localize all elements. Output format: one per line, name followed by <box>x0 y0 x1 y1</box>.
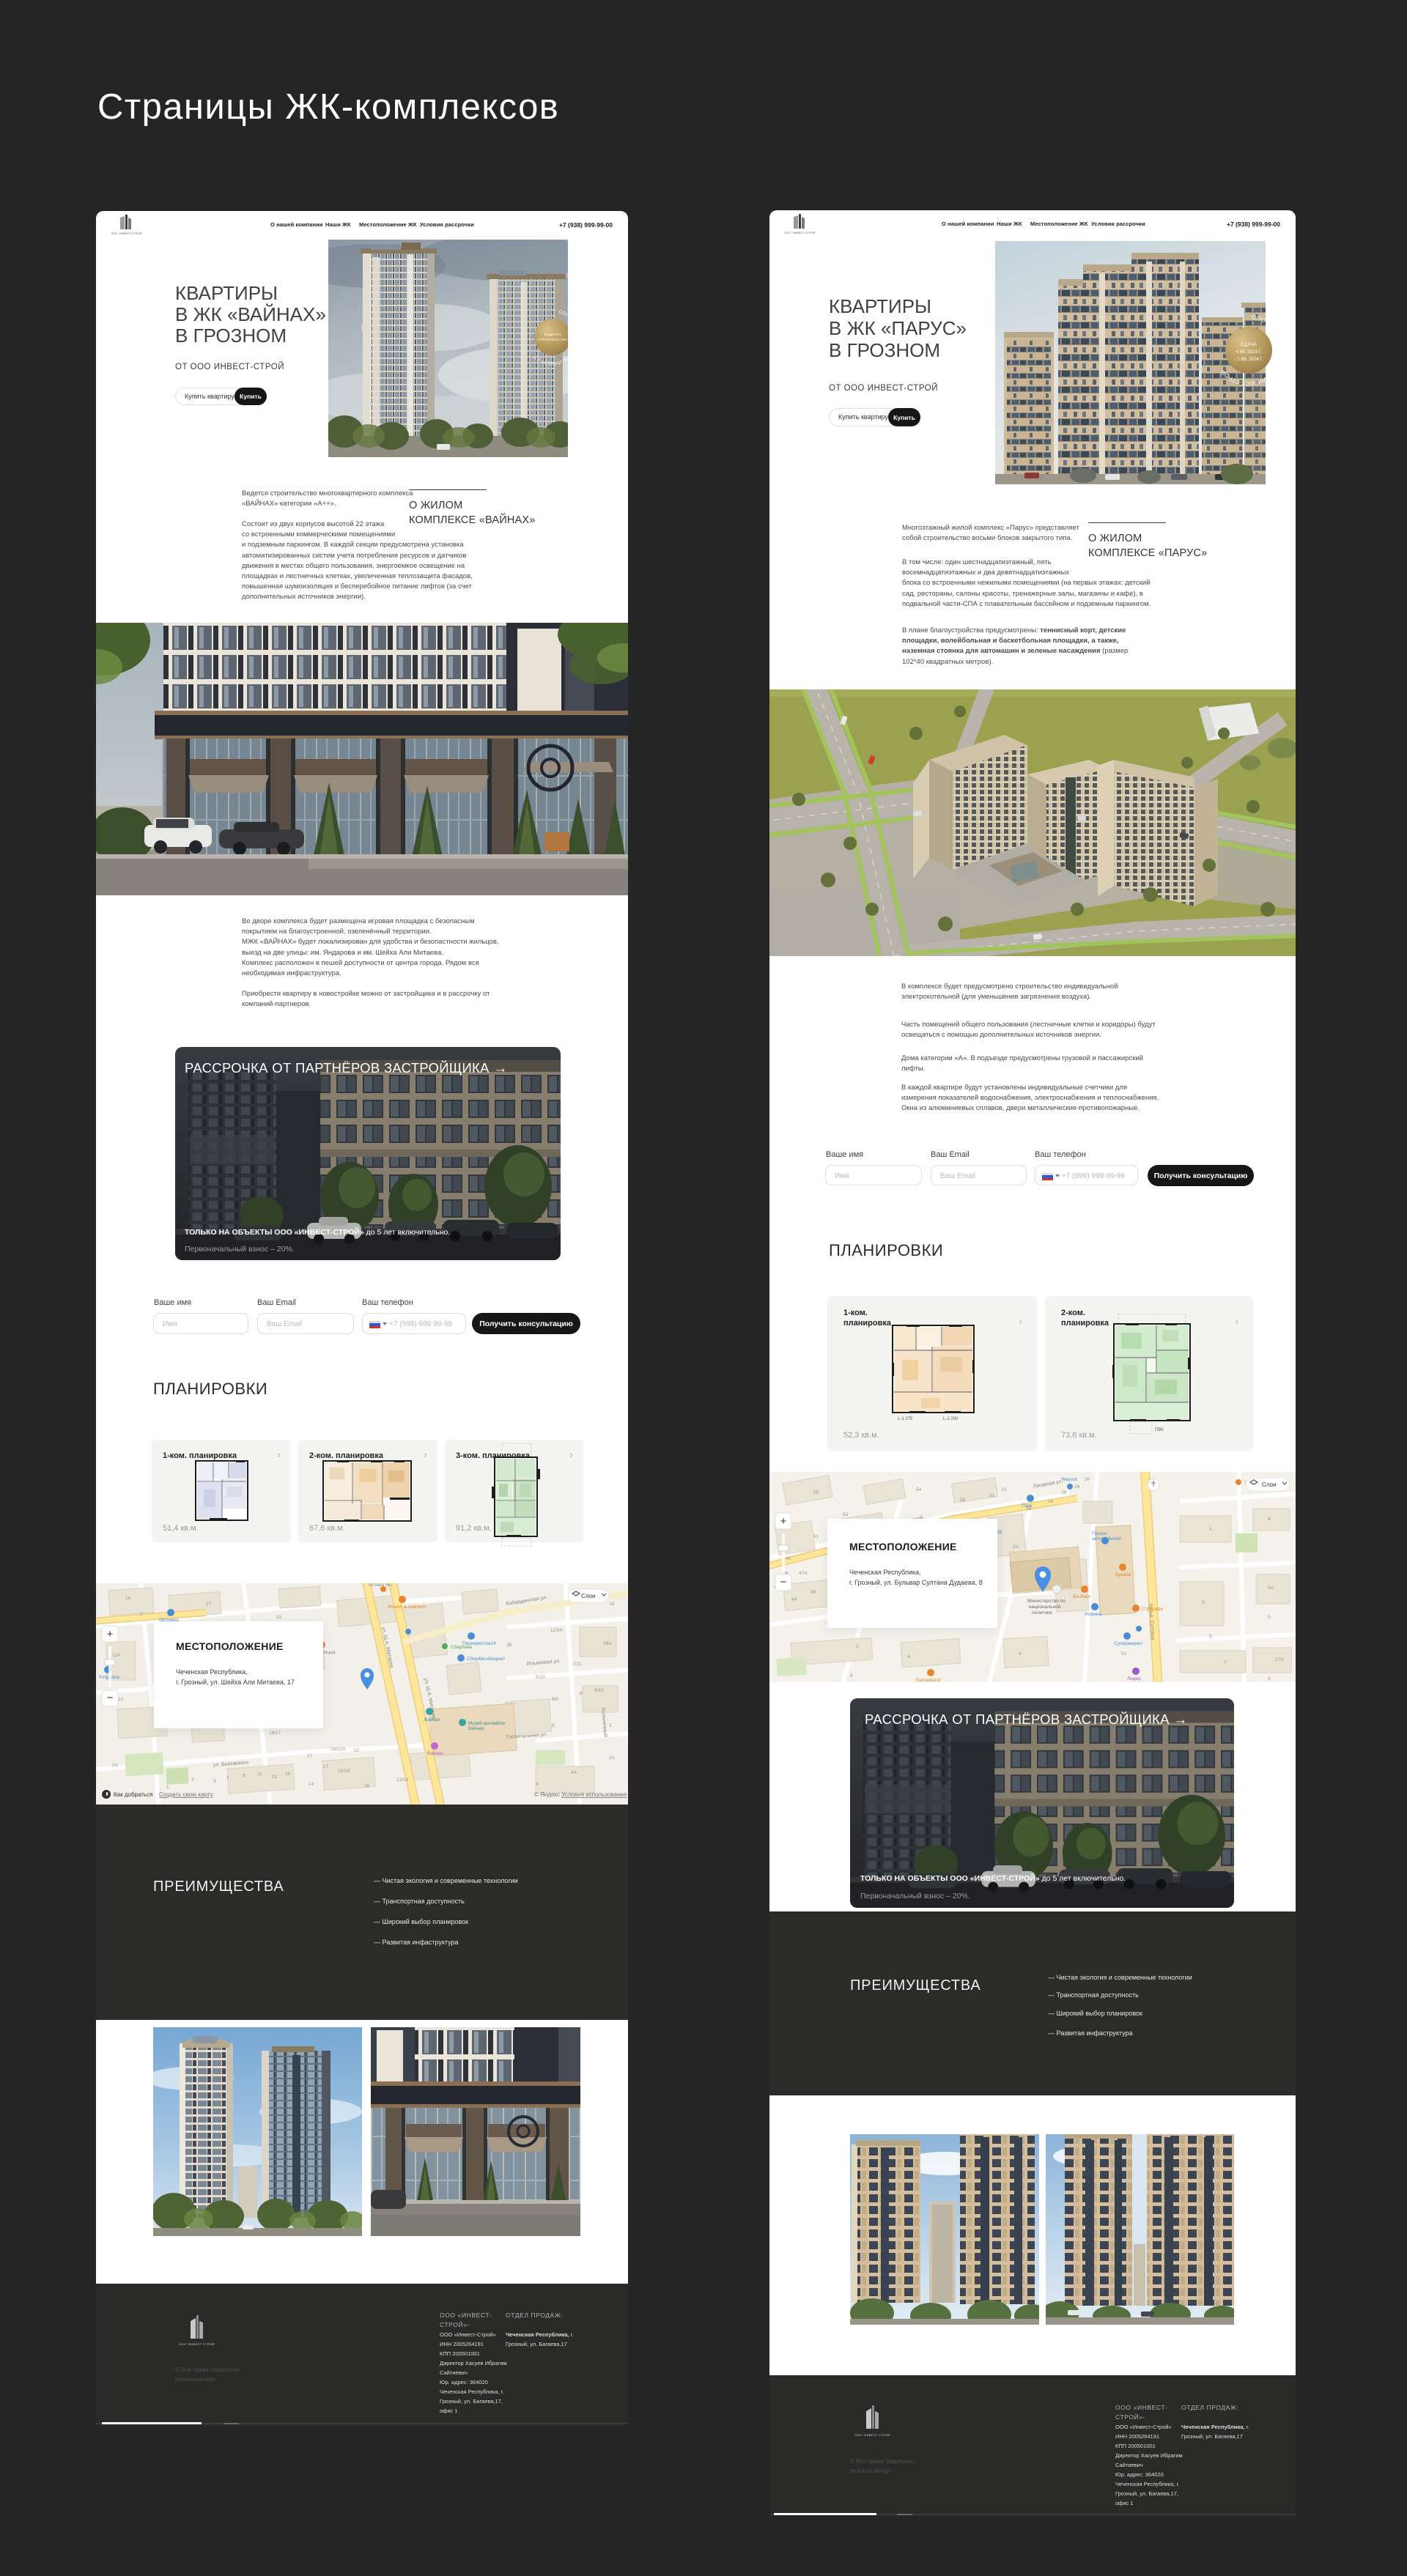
svg-text:−: − <box>780 1576 787 1588</box>
svg-text:8: 8 <box>580 1691 583 1696</box>
svg-text:5: 5 <box>1209 1634 1212 1639</box>
svg-text:Вайнах: Вайнах <box>427 1750 444 1756</box>
svg-text:36: 36 <box>506 1643 512 1648</box>
svg-text:+: + <box>107 1628 114 1640</box>
svg-text:54: 54 <box>916 1487 922 1492</box>
svg-text:4 КВ. 2023 Г.: 4 КВ. 2023 Г. <box>1236 350 1261 355</box>
svg-text:44: 44 <box>791 1597 797 1602</box>
svg-text:9/10: 9/10 <box>594 1688 604 1693</box>
svg-text:политике: политике <box>1032 1610 1052 1615</box>
svg-text:Вайнах: Вайнах <box>468 1725 485 1731</box>
svg-text:Бухара: Бухара <box>1115 1572 1131 1577</box>
svg-text:2А: 2А <box>112 1763 119 1768</box>
svg-text:55: 55 <box>813 1490 819 1495</box>
svg-text:4А: 4А <box>571 1770 577 1775</box>
svg-text:5: 5 <box>213 1779 216 1784</box>
svg-text:Слои: Слои <box>581 1593 595 1599</box>
svg-text:49: 49 <box>786 1556 791 1561</box>
svg-text:47А: 47А <box>799 1571 808 1576</box>
svg-text:18: 18 <box>609 1602 615 1607</box>
svg-text:21: 21 <box>989 1493 995 1498</box>
svg-text:28: 28 <box>1074 1484 1080 1489</box>
svg-text:24: 24 <box>1048 1499 1054 1504</box>
svg-text:национальной: национальной <box>1029 1604 1061 1610</box>
svg-text:5/10: 5/10 <box>536 1675 545 1680</box>
svg-text:5: 5 <box>1268 1615 1271 1620</box>
svg-text:19: 19 <box>1026 1506 1032 1511</box>
svg-text:23: 23 <box>1001 1487 1007 1492</box>
svg-text:2А: 2А <box>1013 1544 1019 1550</box>
svg-text:СДАЧА: СДАЧА <box>1241 343 1257 347</box>
svg-text:27: 27 <box>206 1602 212 1607</box>
svg-text:4: 4 <box>1019 1651 1022 1657</box>
svg-text:Министерство по: Министерство по <box>1027 1599 1066 1604</box>
svg-text:Музей ансамбля: Музей ансамбля <box>468 1720 505 1726</box>
svg-text:2: 2 <box>856 1644 859 1649</box>
svg-text:5А: 5А <box>1268 1585 1274 1591</box>
svg-text:56: 56 <box>960 1498 966 1503</box>
svg-text:15: 15 <box>285 1772 291 1777</box>
svg-text:9: 9 <box>243 1773 245 1778</box>
svg-text:ВЕДЕТСЯ: ВЕДЕТСЯ <box>544 333 561 336</box>
svg-text:15: 15 <box>276 1615 282 1620</box>
svg-text:9: 9 <box>1268 1676 1271 1681</box>
svg-text:- 1 КВ. 2024 Г.: - 1 КВ. 2024 Г. <box>1235 358 1263 362</box>
svg-text:СТРОИТЕЛЬСТВО: СТРОИТЕЛЬСТВО <box>538 338 568 341</box>
svg-text:27А: 27А <box>1275 1657 1284 1662</box>
svg-text:Создать свою карту: Создать свою карту <box>159 1791 213 1798</box>
svg-text:−: − <box>107 1692 114 1704</box>
svg-text:7: 7 <box>1224 1660 1227 1665</box>
svg-text:12: 12 <box>118 1697 124 1702</box>
svg-text:15/19: 15/19 <box>338 1769 350 1774</box>
svg-text:17: 17 <box>307 1754 313 1759</box>
svg-text:18/17: 18/17 <box>269 1731 281 1736</box>
svg-text:ПВХ: ПВХ <box>1155 1428 1164 1432</box>
svg-text:8/6: 8/6 <box>552 1697 558 1702</box>
svg-text:Столовая: Столовая <box>1142 1607 1164 1612</box>
svg-text:3: 3 <box>191 1777 194 1783</box>
svg-text:52: 52 <box>1121 1651 1127 1657</box>
svg-text:12/34: 12/34 <box>550 1628 563 1633</box>
svg-text:2А: 2А <box>609 1755 616 1761</box>
svg-text:14: 14 <box>309 1782 314 1787</box>
svg-text:4: 4 <box>1268 1517 1271 1522</box>
svg-text:+: + <box>780 1515 787 1528</box>
svg-text:30: 30 <box>1085 1477 1090 1482</box>
svg-text:16: 16 <box>125 1596 131 1601</box>
svg-text:17: 17 <box>323 1764 329 1769</box>
svg-text:16/22А: 16/22А <box>330 1747 346 1752</box>
svg-text:Супермаркет: Супермаркет <box>1114 1641 1143 1646</box>
svg-text:Жижиг & Galnash: Жижиг & Galnash <box>388 1605 426 1610</box>
svg-text:L-1 200: L-1 200 <box>943 1417 959 1421</box>
svg-text:16: 16 <box>364 1783 370 1788</box>
svg-text:СберМегаМаркет: СберМегаМаркет <box>467 1656 506 1662</box>
svg-text:7: 7 <box>226 1776 229 1781</box>
svg-text:6: 6 <box>850 1673 853 1679</box>
svg-text:4: 4 <box>536 1782 539 1787</box>
svg-text:7/11: 7/11 <box>572 1662 582 1667</box>
svg-text:11: 11 <box>257 1772 262 1777</box>
svg-text:Ва-Васк: Ва-Васк <box>1073 1594 1090 1599</box>
svg-text:Аптека №7: Аптека №7 <box>369 1583 394 1588</box>
svg-text:13: 13 <box>272 1774 278 1780</box>
svg-text:46: 46 <box>810 1590 816 1595</box>
svg-text:3: 3 <box>1202 1600 1205 1605</box>
svg-text:6: 6 <box>552 1723 555 1728</box>
svg-text:Лидер: Лидер <box>1127 1676 1141 1681</box>
svg-text:Samarkand: Samarkand <box>916 1678 941 1682</box>
svg-text:2: 2 <box>1209 1527 1212 1532</box>
svg-text:3: 3 <box>140 1612 143 1617</box>
svg-text:Сбербанк: Сбербанк <box>451 1644 472 1650</box>
svg-text:51: 51 <box>813 1534 819 1539</box>
svg-text:22: 22 <box>354 1748 360 1753</box>
svg-text:26: 26 <box>1061 1490 1067 1495</box>
svg-text:4: 4 <box>907 1654 910 1659</box>
svg-text:Ясмина: Ясмина <box>1085 1612 1102 1617</box>
svg-text:38А: 38А <box>603 1641 612 1646</box>
svg-text:Вайнах: Вайнах <box>424 1717 441 1722</box>
svg-text:Слои: Слои <box>1262 1481 1276 1488</box>
svg-text:12А: 12А <box>112 1653 121 1658</box>
svg-text:1: 1 <box>166 1785 169 1790</box>
svg-text:13/18: 13/18 <box>396 1777 409 1783</box>
svg-text:L-1 275: L-1 275 <box>898 1417 913 1421</box>
svg-text:53: 53 <box>843 1512 849 1517</box>
svg-text:3: 3 <box>609 1723 612 1728</box>
svg-text:Wayout: Wayout <box>1061 1477 1077 1482</box>
svg-text:© Яндекс Условия использования: © Яндекс Условия использования <box>534 1791 627 1798</box>
svg-text:Как добраться: Как добраться <box>114 1791 152 1798</box>
